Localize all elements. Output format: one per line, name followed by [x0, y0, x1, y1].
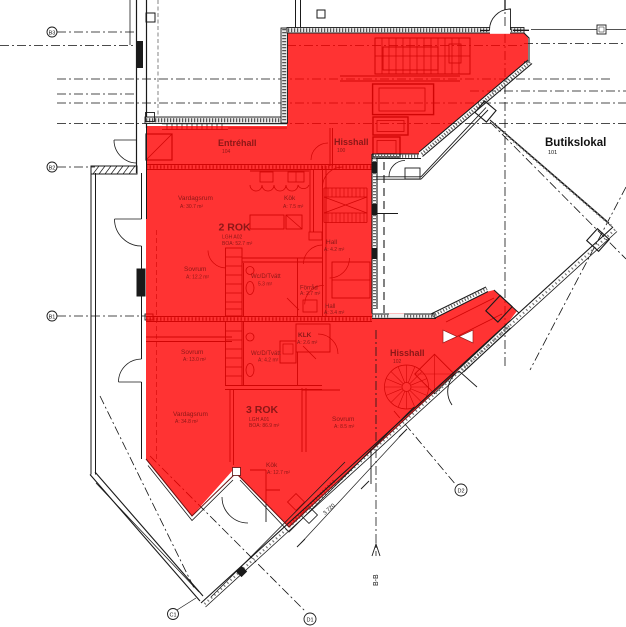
- svg-text:Wc/D/Tvätt: Wc/D/Tvätt: [251, 351, 281, 357]
- svg-text:A: 12.2 m²: A: 12.2 m²: [186, 275, 209, 281]
- svg-text:B3: B3: [49, 31, 56, 37]
- svg-text:C1: C1: [169, 613, 176, 619]
- svg-text:Sovrum: Sovrum: [184, 266, 206, 273]
- svg-text:A: 12.7 m²: A: 12.7 m²: [267, 470, 290, 476]
- svg-text:BOA: 86.9 m²: BOA: 86.9 m²: [249, 423, 280, 429]
- svg-text:Kök: Kök: [284, 195, 296, 202]
- svg-text:Kök: Kök: [266, 462, 278, 469]
- svg-text:A: 3.4 m²: A: 3.4 m²: [324, 310, 345, 316]
- svg-text:A: 8.5 m²: A: 8.5 m²: [334, 424, 355, 430]
- svg-text:Sovrum: Sovrum: [332, 416, 354, 423]
- svg-text:Hisshall: Hisshall: [390, 348, 425, 358]
- svg-text:Butikslokal: Butikslokal: [545, 137, 606, 149]
- svg-text:KLK: KLK: [298, 332, 312, 339]
- svg-text:Vardagsrum: Vardagsrum: [178, 195, 213, 202]
- svg-text:A: 13.0 m²: A: 13.0 m²: [183, 357, 206, 363]
- svg-text:102: 102: [393, 359, 402, 365]
- svg-text:D2: D2: [457, 489, 464, 495]
- svg-text:Wc/D/Tvätt: Wc/D/Tvätt: [251, 274, 281, 280]
- svg-text:A: 7.5 m²: A: 7.5 m²: [283, 204, 304, 210]
- svg-text:2 ROK: 2 ROK: [219, 222, 252, 234]
- svg-text:100: 100: [337, 148, 346, 154]
- svg-text:A: 34.8 m²: A: 34.8 m²: [175, 419, 198, 425]
- svg-text:LGH A02: LGH A02: [222, 235, 243, 241]
- svg-text:Entréhall: Entréhall: [218, 138, 257, 148]
- svg-text:101: 101: [548, 150, 557, 156]
- svg-text:A: 2.6 m²: A: 2.6 m²: [297, 340, 318, 346]
- svg-text:B-B: B-B: [373, 574, 380, 586]
- svg-text:Vardagsrum: Vardagsrum: [173, 411, 208, 418]
- svg-text:3 ROK: 3 ROK: [246, 404, 279, 416]
- svg-text:A: 2.7 m²: A: 2.7 m²: [300, 291, 321, 297]
- svg-text:Hall: Hall: [326, 239, 338, 246]
- svg-text:A: 4.2 m²: A: 4.2 m²: [324, 247, 345, 253]
- svg-text:A: 4.2 m²: A: 4.2 m²: [258, 358, 279, 364]
- svg-text:104: 104: [222, 149, 231, 155]
- svg-text:5.3 m²: 5.3 m²: [258, 282, 273, 288]
- svg-text:BOA: 52.7 m²: BOA: 52.7 m²: [222, 241, 253, 247]
- svg-text:A: 30.7 m²: A: 30.7 m²: [180, 204, 203, 210]
- svg-text:D1: D1: [306, 618, 313, 624]
- svg-text:Hisshall: Hisshall: [334, 137, 369, 147]
- svg-text:Sovrum: Sovrum: [181, 349, 203, 356]
- svg-text:B1: B1: [49, 315, 56, 321]
- svg-text:B2: B2: [49, 166, 56, 172]
